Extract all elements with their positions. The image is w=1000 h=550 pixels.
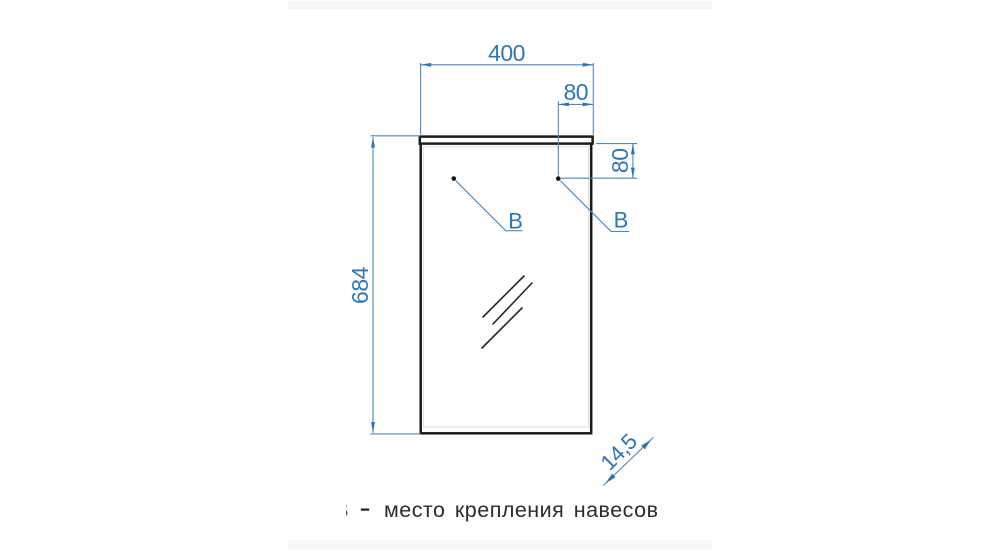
svg-text:400: 400 (488, 40, 525, 66)
svg-text:80: 80 (564, 79, 589, 105)
svg-text:B: B (614, 207, 629, 232)
svg-text:80: 80 (607, 149, 633, 174)
svg-text:B: B (508, 208, 523, 233)
svg-text:14,5: 14,5 (595, 429, 642, 476)
svg-text:В: В (334, 498, 348, 522)
svg-text:684: 684 (347, 266, 373, 304)
svg-text:место крепления навесов: место крепления навесов (384, 498, 658, 522)
